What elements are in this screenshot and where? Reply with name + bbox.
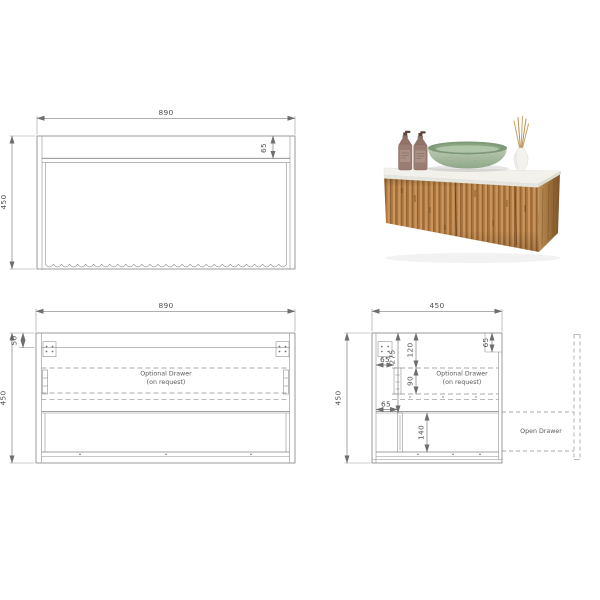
optional-drawer-height-dimension: 90 [406, 368, 417, 394]
wall-bracket-left [43, 342, 56, 357]
top-gap-label: 120 [406, 342, 415, 357]
slide-setback-bottom-label: 65 [381, 400, 391, 409]
soap-bottle-left [399, 131, 413, 170]
side-section-drawing: Optional Drawer (on request) Open Drawer… [330, 293, 600, 483]
carcass-top-panel-dimension: 50 [10, 333, 35, 348]
bottom-drawer-height-dimension: 140 [417, 413, 428, 452]
optional-drawer-note-line2: (on request) [147, 379, 186, 386]
open-drawer-projection: Open Drawer [502, 335, 580, 460]
front-width-dimension: 890 [37, 108, 295, 135]
fluted-door-scalloped-edge [45, 264, 287, 267]
optional-drawer-zone: Optional Drawer (on request) [42, 368, 290, 399]
reed-diffuser [514, 117, 529, 172]
carcass-top-panel-label: 50 [10, 335, 19, 345]
front-top-rail-label: 65 [259, 143, 268, 153]
front-width-label: 890 [158, 108, 173, 117]
carcass-width-dimension: 890 [36, 301, 295, 332]
open-drawer-label: Open Drawer [520, 428, 562, 435]
side-front-rail-label: 65 [481, 337, 490, 347]
front-height-dimension: 450 [0, 136, 36, 269]
slide-setback-bottom-dimension: 65 [376, 400, 398, 410]
soap-bottle-right [414, 131, 428, 170]
side-depth-dimension: 450 [372, 301, 502, 332]
vessel-basin [428, 142, 507, 169]
front-cabinet-outline [37, 136, 295, 269]
top-gap-dimension: 120 [406, 333, 417, 368]
diffuser-reeds [514, 117, 529, 151]
carcass-outline [36, 333, 295, 463]
optional-drawer-height-label: 90 [406, 376, 415, 386]
carcass-width-label: 890 [158, 301, 173, 310]
carcass-front-drawing: Optional Drawer (on request) 890 450 50 [0, 293, 310, 483]
wall-bracket-right [276, 342, 289, 357]
slide-setback-top-label: 65 [380, 355, 390, 364]
page: 890 450 65 [0, 0, 600, 600]
carcass-height-dimension: 450 [0, 333, 35, 463]
side-height-label: 450 [334, 390, 343, 405]
bottom-drawer-height-label: 140 [417, 425, 426, 440]
side-front-rail-dimension: 65 [481, 333, 492, 352]
side-height-dimension: 450 [334, 333, 371, 463]
product-photo [355, 95, 585, 285]
side-optional-drawer-note-line2: (on request) [443, 379, 482, 386]
front-elevation-drawing: 890 450 65 [0, 92, 310, 287]
front-top-rail-dimension: 65 [259, 136, 273, 158]
floor-shadow [385, 253, 561, 263]
optional-drawer-note-line1: Optional Drawer [140, 371, 192, 378]
side-optional-drawer-note-line1: Optional Drawer [436, 371, 488, 378]
front-height-label: 450 [0, 194, 8, 209]
side-depth-label: 450 [429, 301, 444, 310]
carcass-height-label: 450 [0, 390, 8, 405]
